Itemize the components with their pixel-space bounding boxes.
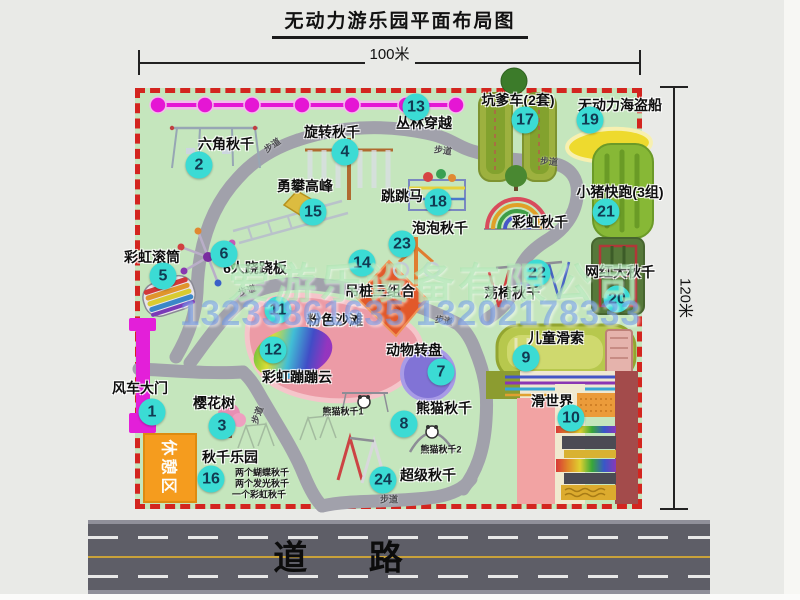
cherry-tree-icon [214,403,246,438]
jumping-horse-icon [409,169,465,210]
dimension-top: 100米 [138,50,641,76]
dimension-top-tick-left [138,50,140,75]
rainbow-swing-arcs-icon [484,199,552,229]
dimension-right: 120米 [660,86,688,510]
road-label: 道 路 [273,531,428,580]
slide-world-icon [486,371,638,504]
dimension-right-tick-bottom [660,508,688,510]
rest-area-label: 休憩区 [158,439,182,496]
super-swing-icon [338,438,386,483]
jungle-crossing-chain-icon [150,97,464,113]
big-swing-icon [592,238,644,314]
climbing-peak-icon [233,191,348,243]
piggy-run-icon [593,144,653,238]
zipline-icon [497,325,635,379]
edge-strip-right [784,0,800,600]
dimension-top-tick-right [639,50,641,75]
rotating-swing-icon [305,138,393,200]
rest-area: 休憩区 [143,433,197,503]
dimension-right-label: 120米 [676,278,697,318]
swing-chair-icon [489,262,569,307]
park-plan-canvas: 无动力游乐园平面布局图 100米 120米 [0,0,800,600]
panda-swing-icons [342,393,454,452]
animal-turntable-icon [402,348,454,400]
dimension-top-label: 100米 [364,43,414,64]
page-title: 无动力游乐园平面布局图 [0,6,800,39]
dimension-right-tick-top [660,86,688,88]
edge-strip-bottom [0,594,800,600]
road: 道 路 [88,520,710,594]
page-title-text: 无动力游乐园平面布局图 [272,6,527,39]
